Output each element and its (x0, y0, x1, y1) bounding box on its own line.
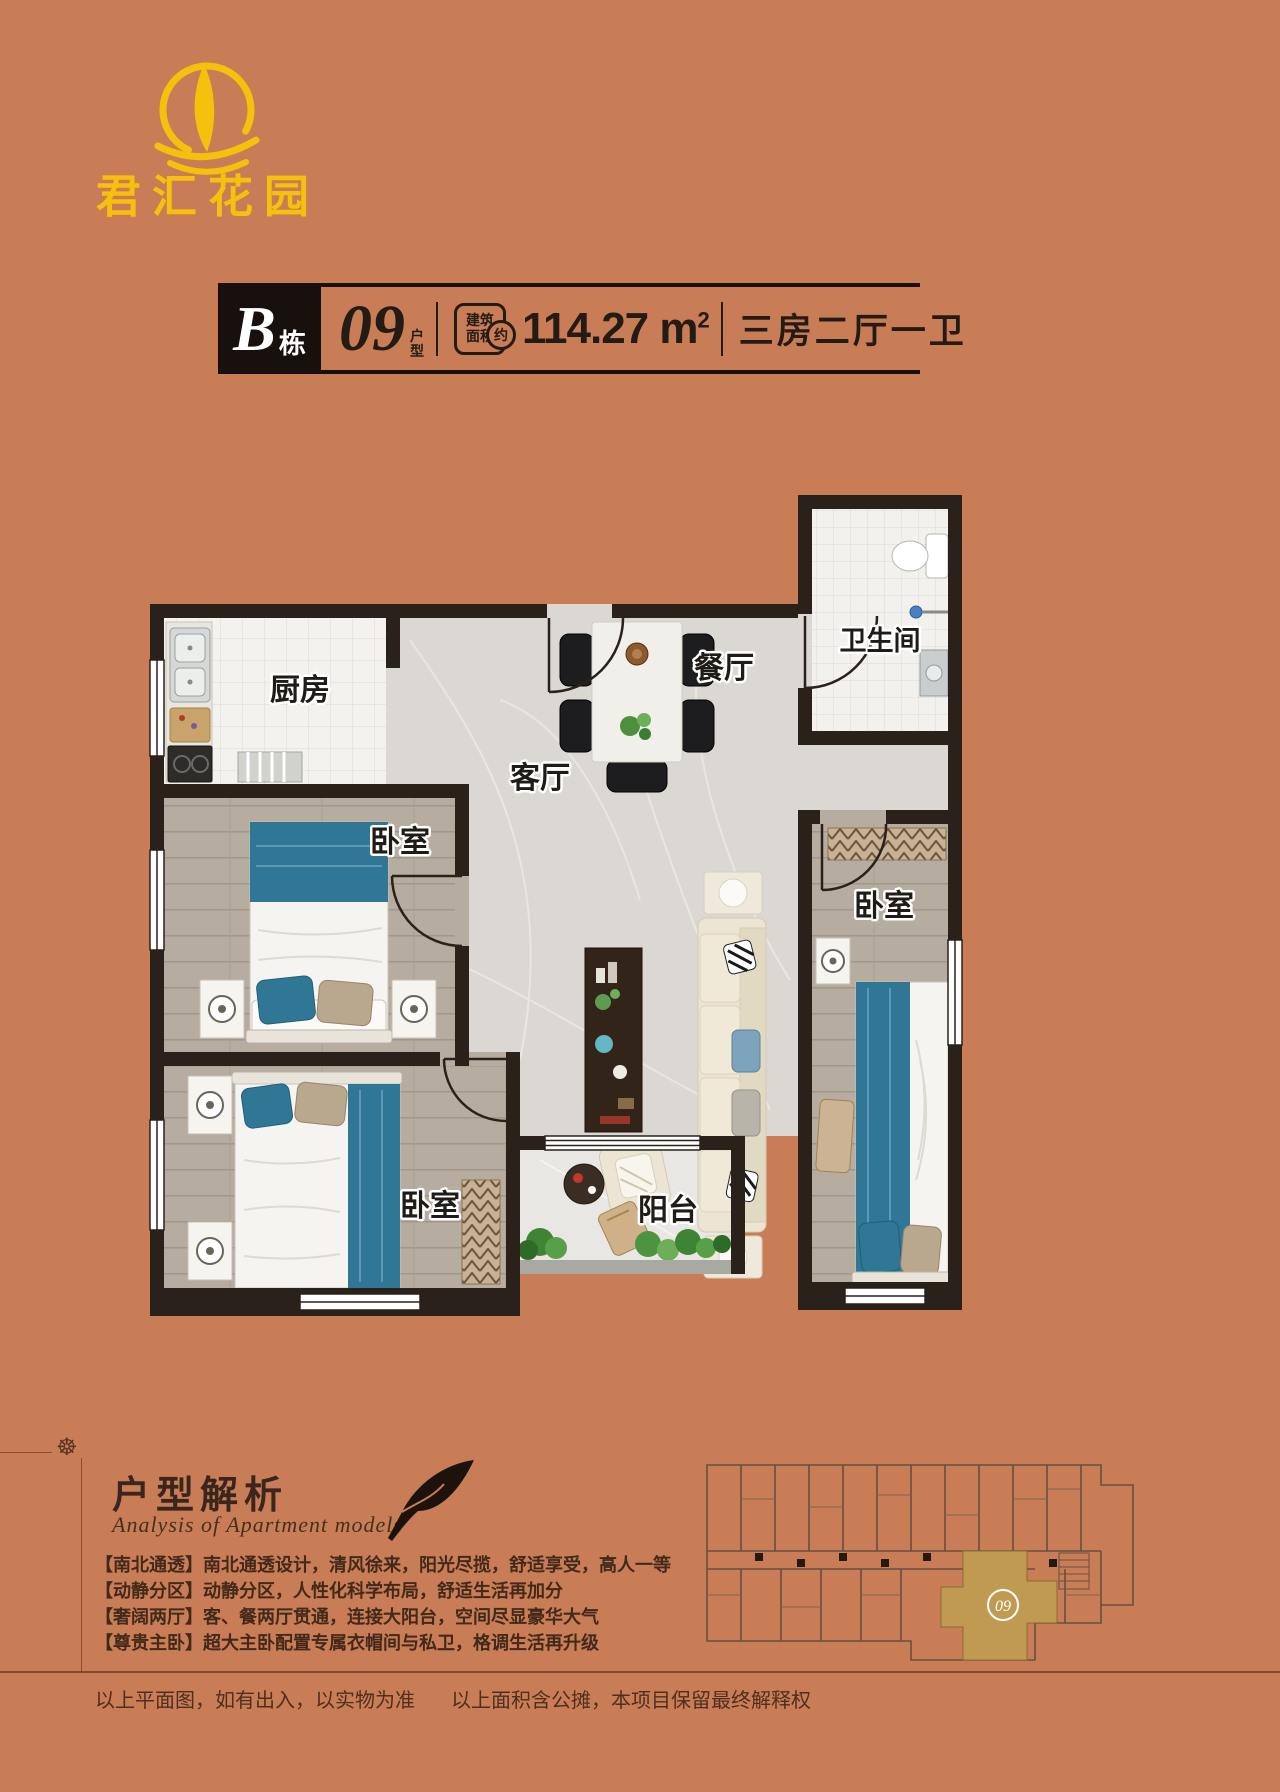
room-label-bedroom-left: 卧室 (370, 825, 430, 859)
analysis-point: 【奢阔两厅】客、餐两厅贯通，连接大阳台，空间尽显豪华大气 (95, 1604, 675, 1630)
analysis-subtitle: Analysis of Apartment models (112, 1512, 403, 1538)
room-label-living: 客厅 (510, 761, 570, 795)
disclaimer-left: 以上平面图，如有出入，以实物为准 (95, 1684, 415, 1713)
room-label-dining: 餐厅 (694, 652, 754, 685)
poster-page: 君汇花园 B 栋 09 户型 建筑 面积 约 114.27 m2 三房二厅一卫 (0, 0, 1280, 1792)
analysis-point: 【尊贵主卧】超大主卧配置专属衣帽间与私卫，格调生活再升级 (95, 1630, 675, 1656)
analysis-title: 户型解析 (112, 1464, 288, 1519)
decor-line (0, 1452, 52, 1453)
quill-feather-icon (382, 1456, 478, 1546)
room-label-bathroom: 卫生间 (840, 626, 921, 656)
room-label-kitchen: 厨房 (270, 674, 330, 707)
room-label-bedroom-bottom: 卧室 (400, 1189, 460, 1223)
analysis-point: 【动静分区】动静分区，人性化科学布局，舒适生活再加分 (95, 1578, 675, 1604)
footer-disclaimer: 以上平面图，如有出入，以实物为准 以上面积含公摊，本项目保留最终解释权 (95, 1684, 811, 1713)
room-label-balcony: 阳台 (638, 1193, 698, 1227)
room-label-bedroom-master: 卧室 (854, 889, 914, 923)
decor-vertical-line (81, 1458, 82, 1672)
keyplan-unit-label: 09 (995, 1598, 1011, 1615)
ship-wheel-icon: ☸ (56, 1436, 78, 1460)
analysis-points: 【南北通透】南北通透设计，清风徐来，阳光尽揽，舒适享受，高人一等 【动静分区】动… (95, 1552, 675, 1656)
footer-divider (0, 1671, 1280, 1673)
building-key-plan: 09 (705, 1455, 1135, 1669)
analysis-point: 【南北通透】南北通透设计，清风徐来，阳光尽揽，舒适享受，高人一等 (95, 1552, 675, 1578)
disclaimer-right: 以上面积含公摊，本项目保留最终解释权 (451, 1684, 811, 1713)
